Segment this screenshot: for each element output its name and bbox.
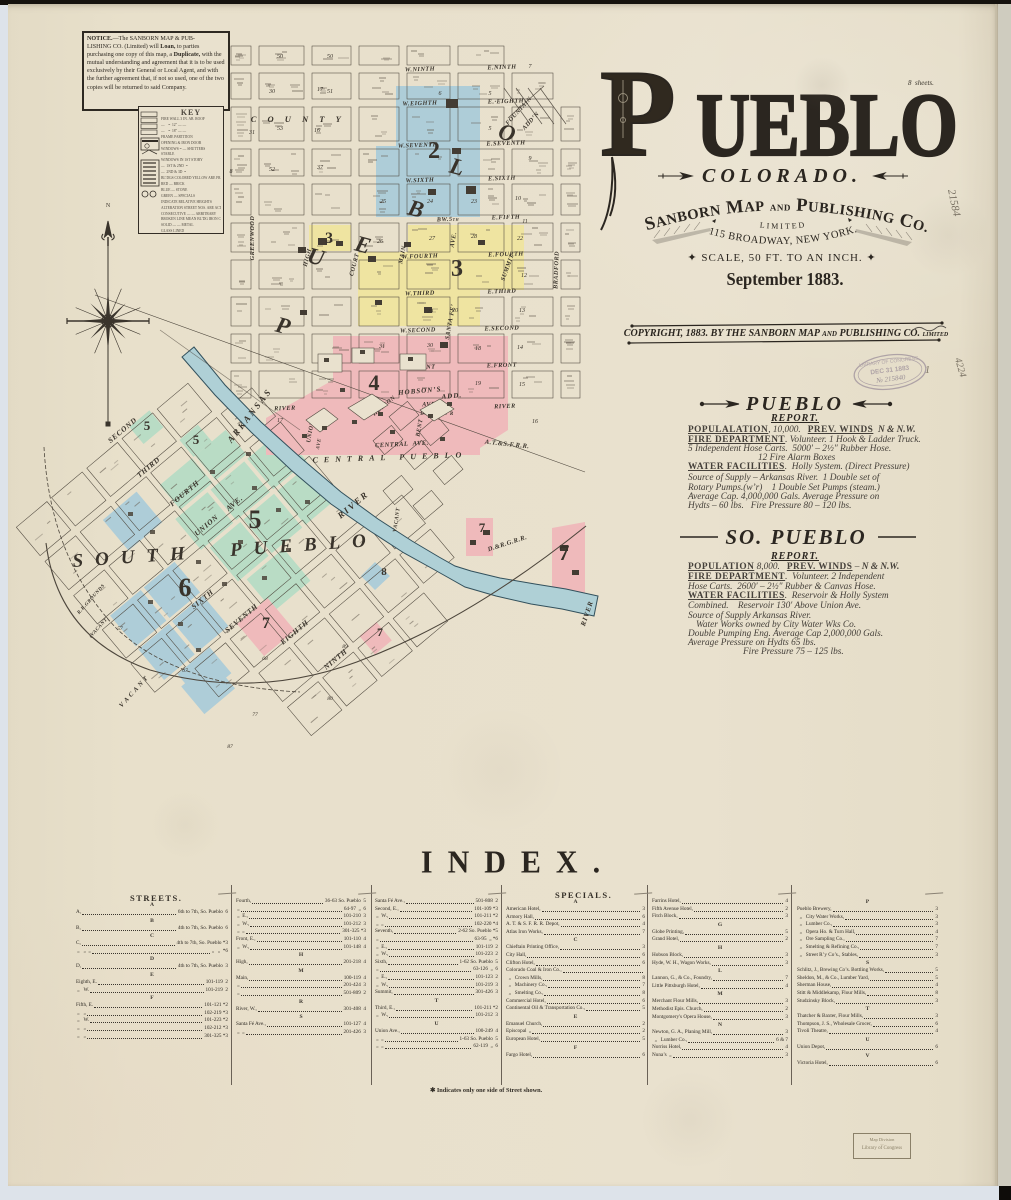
svg-text:E.NINTH: E.NINTH (486, 63, 516, 71)
svg-text:5: 5 (144, 418, 151, 433)
svg-text:COLORADO.: COLORADO. (702, 165, 862, 187)
svg-text:9: 9 (529, 156, 532, 162)
svg-text:5: 5 (193, 432, 200, 447)
svg-text:31: 31 (378, 344, 385, 350)
svg-text:30: 30 (268, 89, 275, 95)
svg-text:31: 31 (248, 130, 255, 136)
svg-text:16: 16 (314, 128, 320, 134)
svg-text:68: 68 (262, 656, 268, 662)
svg-text:10: 10 (515, 196, 521, 202)
svg-text:V A C A N T: V A C A N T (118, 675, 150, 710)
svg-text:51: 51 (327, 89, 333, 95)
svg-text:13: 13 (519, 308, 525, 314)
svg-text:14: 14 (517, 344, 523, 351)
svg-text:17: 17 (277, 418, 284, 424)
svg-text:✦ SCALE, 50 FT. TO AN INCH. ✦: ✦ SCALE, 50 FT. TO AN INCH. ✦ (687, 252, 876, 264)
svg-text:E.FIFTH: E.FIFTH (491, 214, 521, 222)
svg-text:COPYRIGHT, 1883. BY THE SANBOR: COPYRIGHT, 1883. BY THE SANBORN MAP AND … (624, 328, 949, 339)
svg-text:87: 87 (227, 744, 233, 750)
svg-text:8: 8 (230, 169, 233, 175)
svg-text:E.FOURTH: E.FOURTH (487, 250, 524, 258)
svg-text:8 sheets.: 8 sheets. (908, 79, 934, 87)
svg-text:September 1883.: September 1883. (727, 270, 844, 290)
svg-text:2: 2 (428, 138, 440, 164)
svg-text:16: 16 (532, 419, 538, 425)
svg-text:E.FRONT: E.FRONT (486, 361, 517, 369)
svg-text:22: 22 (517, 236, 523, 242)
svg-text:5: 5 (489, 91, 492, 97)
svg-text:E.SIXTH: E.SIXTH (487, 175, 516, 183)
svg-text:26: 26 (377, 239, 383, 245)
svg-text:ADD’N: ADD’N (520, 110, 541, 132)
svg-text:21584: 21584 (945, 188, 963, 218)
svg-text:W.EIGHTH: W.EIGHTH (402, 99, 437, 107)
svg-text:53: 53 (277, 126, 283, 132)
svg-text:LIMITED: LIMITED (759, 220, 806, 231)
svg-text:28: 28 (471, 234, 477, 240)
svg-text:52: 52 (269, 167, 275, 173)
svg-text:7: 7 (479, 520, 486, 535)
svg-text:20: 20 (452, 308, 458, 314)
svg-text:30: 30 (426, 343, 433, 349)
svg-text:6: 6 (179, 573, 192, 602)
svg-text:80: 80 (327, 696, 333, 702)
svg-text:GREENWOOD: GREENWOOD (249, 216, 256, 261)
svg-text:29: 29 (427, 309, 433, 315)
svg-text:27: 27 (429, 236, 436, 242)
svg-text:E.SECOND: E.SECOND (483, 324, 519, 332)
svg-text:E.THIRD: E.THIRD (486, 288, 516, 296)
svg-text:57: 57 (117, 626, 123, 632)
svg-text:4: 4 (369, 370, 380, 395)
svg-text:50: 50 (277, 54, 283, 60)
svg-text:R.R.GROUNDS: R.R.GROUNDS (77, 584, 107, 616)
svg-text:W.NINTH: W.NINTH (405, 65, 435, 73)
svg-text:23: 23 (471, 199, 477, 205)
svg-text:W.THIRD: W.THIRD (405, 289, 435, 297)
svg-text:89: 89 (342, 644, 348, 650)
svg-text:5: 5 (249, 505, 262, 534)
svg-text:12: 12 (521, 273, 527, 279)
svg-text:3: 3 (451, 256, 463, 282)
svg-text:W.FOURTH: W.FOURTH (402, 252, 439, 260)
svg-text:A.T.&S.F.R.R.: A.T.&S.F.R.R. (484, 439, 530, 451)
svg-text:25: 25 (380, 199, 386, 205)
svg-text:15: 15 (519, 382, 525, 388)
svg-text:C O U N T Y: C O U N T Y (251, 114, 346, 124)
svg-text:W.SECOND: W.SECOND (400, 326, 436, 334)
svg-text:6: 6 (439, 91, 442, 97)
svg-text:PUEBLO: PUEBLO (745, 393, 844, 415)
svg-text:7: 7 (262, 615, 270, 632)
svg-text:5: 5 (489, 126, 492, 132)
svg-text:W.SIXTH: W.SIXTH (405, 177, 434, 185)
svg-text:37: 37 (316, 165, 324, 171)
svg-text:3: 3 (325, 230, 333, 247)
svg-text:24: 24 (427, 198, 433, 205)
svg-text:11: 11 (522, 219, 528, 225)
svg-text:RIVER: RIVER (493, 403, 516, 411)
svg-text:19: 19 (475, 381, 481, 387)
svg-text:E.·EIGHTH: E.·EIGHTH (487, 97, 524, 105)
svg-text:RIVER: RIVER (273, 405, 296, 413)
svg-text:UEBLO: UEBLO (696, 76, 958, 175)
svg-text:N: N (106, 203, 111, 209)
svg-text:7: 7 (377, 625, 383, 639)
svg-text:SO. PUEBLO: SO. PUEBLO (725, 525, 866, 549)
svg-text:BW.5TH: BW.5TH (436, 216, 460, 224)
svg-text:7: 7 (529, 64, 533, 70)
svg-text:50: 50 (327, 54, 333, 60)
svg-text:77: 77 (252, 712, 258, 718)
svg-text:17: 17 (317, 87, 324, 93)
svg-text:18: 18 (475, 346, 481, 352)
